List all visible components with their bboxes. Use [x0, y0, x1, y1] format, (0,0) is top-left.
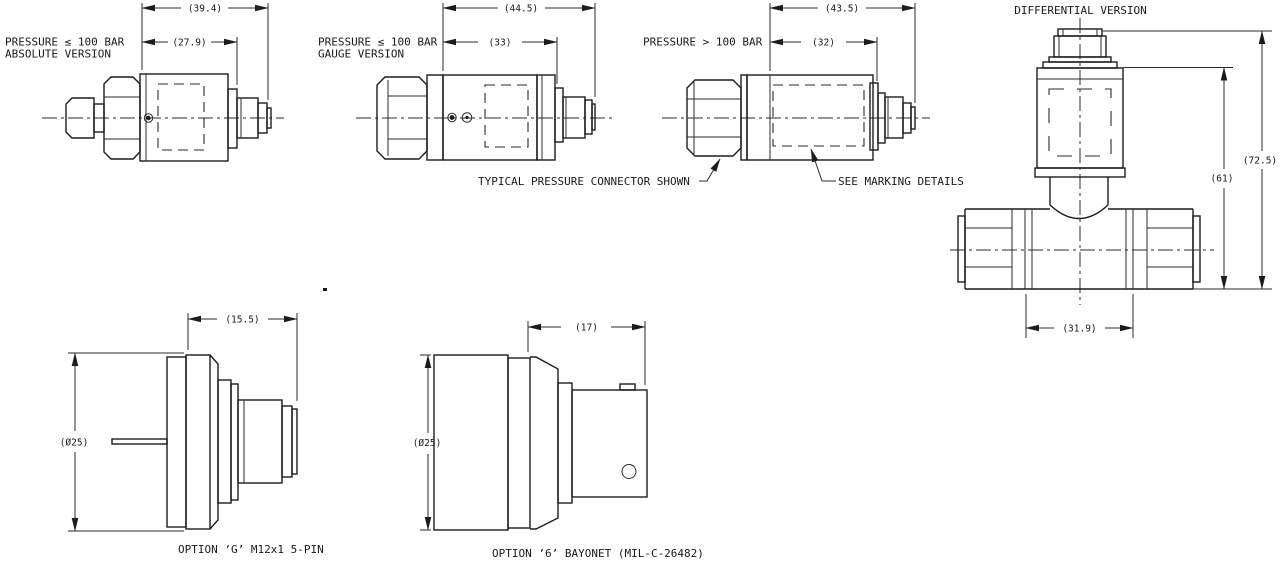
- dim-overall-length: (44.5): [504, 4, 538, 15]
- marking-area: [485, 85, 528, 147]
- bayonet-pin: [622, 465, 636, 479]
- flange-bevel: [530, 357, 558, 529]
- bayonet-shell: [572, 390, 647, 497]
- annotations: TYPICAL PRESSURE CONNECTOR SHOWN SEE MAR…: [323, 149, 964, 291]
- extension-lines: [188, 313, 297, 401]
- gauge-reference-port-center: [465, 116, 468, 119]
- dim-overall-length: (39.4): [188, 4, 222, 15]
- extension-lines: [443, 3, 595, 97]
- engineering-drawing-sheet: (39.4) (27.9) PRESSURE ≤ 100 BAR ABSOLUT…: [0, 0, 1280, 588]
- connector-barrel: [238, 400, 282, 483]
- view-label-line2: ABSOLUTE VERSION: [5, 48, 111, 61]
- flange-plate: [186, 355, 210, 529]
- mounting-disc: [167, 357, 186, 527]
- view-title: DIFFERENTIAL VERSION: [1014, 4, 1146, 17]
- dim-body-length: (33): [489, 38, 512, 49]
- view-absolute: (39.4) (27.9) PRESSURE ≤ 100 BAR ABSOLUT…: [5, 3, 284, 161]
- connector-base-plate: [555, 88, 563, 142]
- view-option-g: (15.5) (Ø25) OPTION ’G’ M12x1 5-PIN: [60, 313, 324, 556]
- dim-body-height: (61): [1211, 174, 1234, 185]
- view-label: OPTION ’6’ BAYONET (MIL-C-26482): [492, 547, 704, 560]
- connector-flange: [870, 83, 878, 150]
- extension-lines: [770, 3, 915, 103]
- view-label-line1: PRESSURE > 100 BAR: [643, 36, 763, 49]
- dim-overall-length: (43.5): [825, 4, 859, 15]
- connector-end-cap: [592, 104, 595, 130]
- dim-base-width: (31.9): [1062, 324, 1096, 335]
- view-option-6: (17) (Ø25) OPTION ’6’ BAYONET (MIL-C-264…: [413, 321, 704, 560]
- extension-lines: [142, 3, 268, 100]
- view-label: OPTION ’G’ M12x1 5-PIN: [178, 543, 324, 556]
- view-label-line2: GAUGE VERSION: [318, 48, 404, 61]
- note-typical-connector: TYPICAL PRESSURE CONNECTOR SHOWN: [478, 175, 690, 188]
- connector-tip: [585, 100, 592, 134]
- marking-area: [773, 85, 864, 146]
- step-two: [231, 384, 238, 500]
- base-left-end-cap: [958, 216, 965, 282]
- flange-plate: [508, 358, 530, 528]
- dim-total-height: (72.5): [1243, 156, 1277, 167]
- view-high-pressure: (43.5) (32) PRESSURE > 100 BAR: [643, 3, 930, 160]
- view-gauge: (44.5) (33) PRESSURE ≤ 100 BAR GAUGE VER…: [318, 3, 614, 160]
- connector-pin: [112, 439, 167, 444]
- dim-diameter: (Ø25): [60, 438, 89, 449]
- dim-body-length: (32): [812, 38, 835, 49]
- vent-hole: [450, 115, 455, 120]
- neck-transition: [1050, 177, 1108, 219]
- leader-typical-connector: [699, 159, 720, 181]
- dim-diameter: (Ø25): [413, 438, 442, 449]
- connector-housing: [434, 355, 508, 530]
- note-see-marking: SEE MARKING DETAILS: [838, 175, 964, 188]
- dim-depth: (15.5): [225, 315, 259, 326]
- flange-bevel: [210, 355, 218, 529]
- dim-body-length: (27.9): [172, 38, 206, 49]
- pressure-transducer-outline-drawing: (39.4) (27.9) PRESSURE ≤ 100 BAR ABSOLUT…: [0, 0, 1280, 588]
- connector-tip: [282, 406, 292, 477]
- vent-hole: [146, 116, 150, 120]
- stray-mark: [323, 288, 327, 291]
- hex-flat-lines: [965, 228, 1193, 267]
- marking-area: [158, 84, 204, 150]
- bayonet-key: [620, 384, 635, 390]
- step: [558, 383, 572, 503]
- view-differential: DIFFERENTIAL VERSION (31.9) (61) (72.5): [950, 4, 1277, 338]
- connector-end-cap: [292, 409, 297, 474]
- connector-end-cap: [911, 107, 915, 129]
- step-one: [218, 380, 231, 503]
- base-right-end-cap: [1193, 216, 1200, 282]
- manifold-base: [965, 209, 1193, 289]
- leader-see-marking: [811, 149, 836, 181]
- dim-depth: (17): [575, 323, 598, 334]
- base-ring-lines: [1025, 209, 1133, 289]
